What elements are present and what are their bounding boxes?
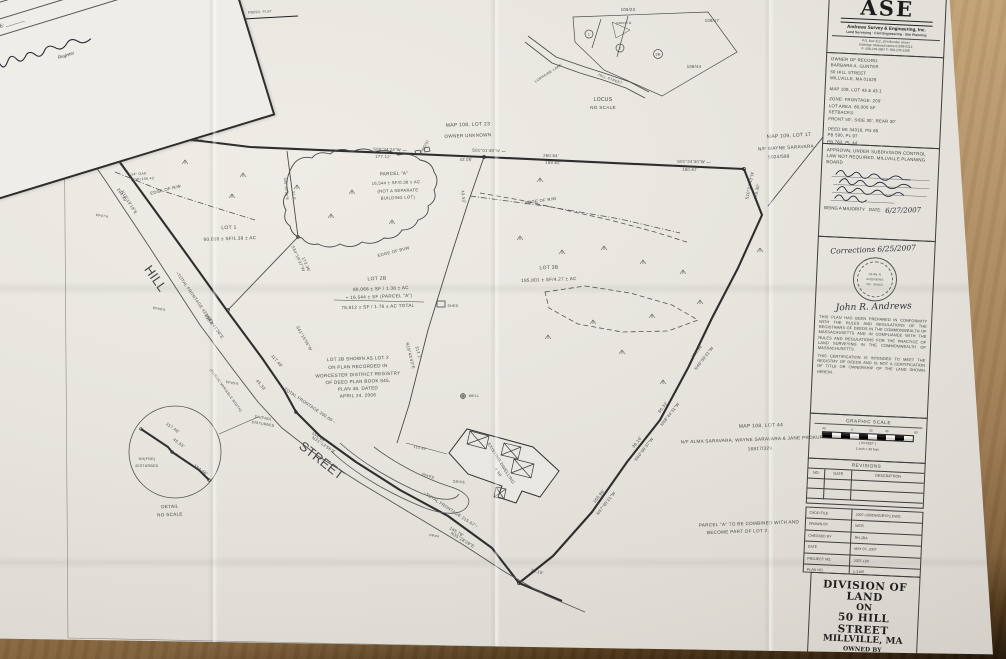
well-symbol [461,394,466,399]
dim-label: N18°19'18"E [120,189,139,215]
corrections-note-handwritten: Corrections 6/25/2007 [830,243,930,256]
parcel-a-note: BUILDING LOT) [381,194,416,200]
plan-title-block: DIVISION OF LAND ON 50 HILL STREET MILLV… [806,572,920,659]
sheet-border [64,86,856,654]
dim-label: S08°10'56"E [283,177,289,201]
monument-label: DISTURBED [252,420,275,428]
map-108-lot-44: MAP 108, LOT 44 [739,422,784,430]
detail-circle [129,406,258,498]
edge-of-rw: EDGE OF R/W [525,196,557,205]
parcel-a-note: (NOT A SEPARATE [377,187,418,193]
dim-label: 51.0' [292,191,297,200]
seal-number: No. 36062 [866,282,883,287]
locus-hill-street: HILL STREET [598,73,624,86]
scale-tick: 40 [822,426,826,430]
lot-2b-note: PLAN 48, DATED [338,385,379,391]
monument-label: DISTURBED [136,464,159,468]
lot-1-area: 60,036 ± SF/1.38 ± AC [204,235,257,242]
lot-2b-note: ON PLAN RECORDED IN [328,363,387,370]
board-signatures [824,168,934,209]
edge-of-bvw: EDGE OF BVW [377,245,410,258]
survey-plan-paper: PB590, PL97 109/23 109/17 108/44 parcel … [0,0,1006,659]
dim-label: 45.33' [172,437,186,449]
date-label: DATE: [869,208,882,214]
street-width-note: (PUBLIC-VARIABLE WIDTH) [209,368,243,413]
lot-2b-area: 60,068 ± SF / 1.38 ± AC [353,285,409,292]
deed-ref: 16817/329 [748,446,773,452]
abutter-name: N/F ALMA SARAVARA, WAYNE SARAVARA & JANE… [681,435,824,445]
being-a-majority: BEING A MAJORITY [824,205,865,212]
dim-label: 42.05' [459,157,472,162]
planning-board-approval-block: APPROVAL UNDER SUBDIVISION CONTROL LAW N… [818,143,940,242]
utility-pole: PP#5½ [225,380,238,386]
approval-text: APPROVAL UNDER SUBDIVISION CONTROL LAW N… [826,147,935,170]
certification-paragraph-1: THIS PLAN HAS BEEN PREPARED IN CONFORMIT… [818,314,928,355]
wetland-symbols [182,160,763,384]
scale-tick: 40 [885,429,889,433]
shed-label: SHED [448,304,459,308]
lot-2b-area-total: 76,612 ± SF / 1.76 ± AC TOTAL [341,303,415,311]
well-label: WELL [469,394,480,398]
dim-label: 177.12' [375,154,391,159]
utility-pole: PP#7½ [95,213,108,219]
dim-label: 38.16' [631,435,643,448]
locus-parcel-108-44: 108/44 [687,64,702,69]
deed-ref: 5024/599 [768,153,790,159]
surveyor-seal: JOHN R. ANDREWS No. 36062 [852,256,898,302]
paved-drive [331,443,469,513]
lot-1-label: LOT 1 [221,225,237,232]
detail-title: DETAIL [161,504,179,510]
scale-tick: 20 [869,428,873,432]
dim-label: 43.53' [460,190,467,204]
detail-no-scale: NO SCALE [157,512,183,518]
dim-label: 117.48' [165,421,180,434]
edge-of-rw: EDGE OF R/W [150,183,182,195]
certification-block: Corrections 6/25/2007 JOHN R. ANDREWS No… [810,236,936,419]
dim-label: 45.33' [255,378,267,391]
frontage-label: ~TOTAL FRONTAGE 200.00'~ [281,385,337,425]
revisions-empty-cell [807,489,825,500]
lot-2b-area: + 16,544 ± SF (PARCEL "A") [346,293,413,300]
dim-label: 317.1' [414,346,422,360]
owner-unknown: OWNER UNKNOWN [444,132,491,139]
parcel-a-combine-note: PARCEL "A" TO BE COMBINED WITH AND [699,519,800,528]
scale-tick: 0 [851,427,853,431]
revisions-block: REVISIONS NO. DATE DESCRIPTION [806,458,926,509]
locus-labels: 109/23 109/17 108/44 parcel A 1 2 3B LOR… [534,7,720,110]
dim-label: 155.30' [752,183,760,199]
locus-lorraine-lane: LORRAINE LANE [534,63,563,84]
dim-label: 73.15' [530,568,544,576]
street-name-hill: HILL [141,262,170,294]
dim-label: 117.48' [270,354,284,369]
locus-parcel-a: parcel A [616,21,631,25]
dim-label: 154.68' [193,463,209,476]
locus-parcel-109-23: 109/23 [621,7,636,12]
map-109-lot-17: MAP 109, LOT 17 [767,132,812,140]
dim-label: 260.64' [543,153,559,158]
locus-lot-2: 2 [619,47,621,51]
revisions-empty-cell [824,489,851,500]
dim-label: 110.36' [413,445,427,451]
certification-paragraph-2: THIS CERTIFICATION IS INTENDED TO MEET T… [817,353,926,379]
dim-label: S01°01'49"W — [472,148,507,154]
shed-symbol-mid [437,301,445,307]
dim-label: S41°15'55"W [295,325,313,352]
dim-label: S00°34'24"W — [373,147,408,153]
dim-label: 180.67' [682,167,698,172]
revisions-empty-cell [851,491,923,504]
graphic-scale-block: GRAPHIC SCALE 40 0 20 40 80 ( IN FEET ) … [808,413,928,464]
locus-lot-1: 1 [588,33,590,37]
dim-label: 199.62' [545,160,561,165]
drive-label: DRIVE [453,480,466,485]
parcel-boundary [95,128,762,601]
surveyor-signature: John R. Andrews [820,301,928,314]
plan-labels: MAP 108, LOT 23 OWNER UNKNOWN S89°34'32"… [75,116,823,576]
lot-2b-note: APRIL 24, 2006 [340,392,377,398]
lot-3b-label: LOT 3B [539,265,559,272]
utility-pole: PP#6½ [152,306,165,312]
dim-label: S01°24'30"W — [677,159,712,165]
lot-2b-note: LOT 2B SHOWN AS LOT 2 [327,355,389,362]
locus-parcel-109-17: 109/17 [705,18,720,23]
dim-label: 0.35' [171,450,181,459]
oak-tree-label: 24" OAK [131,171,147,176]
lot-3b-area: 185,801 ± SF/4.27 ± AC [521,276,577,283]
abutter-name: N/F WAYNE SARAVARA [758,144,815,152]
scale-tick: 80 [914,430,918,434]
seal-name: ANDREWS [866,277,884,282]
map-108-lot-23: MAP 108, LOT 23 [446,121,491,129]
parcel-a-combine-note: BECOME PART OF LOT 2. [707,528,769,535]
seal-name: JOHN R. [868,272,882,277]
locus-lot-3b: 3B [656,53,661,57]
firm-block: ASE Andrews Survey & Engineering, Inc. L… [826,0,947,58]
photo-scene: PB590, PL97 109/23 109/17 108/44 parcel … [0,0,1006,659]
parcel-a-area: 16,544 ± SF/0.38 ± AC [372,179,421,186]
lot-2b-label: LOT 2B [367,276,387,283]
drawing-info-table: CADD FILE2007-100/DWG/BYP2.DWG DRAWN BYW… [803,506,924,577]
north-arrow-ref: PB590, PL97 [248,9,272,14]
oak-tree-label: W/W=106.42' [131,176,156,182]
approval-date-handwritten: 6/27/2007 [885,207,921,216]
locus-no-scale: NO SCALE [590,105,616,110]
parcel-a-label: PARCEL "A" [380,171,409,177]
utility-pole: PP#4 [429,533,439,538]
sum-underline [334,300,424,302]
locus-title: LOCUS [594,97,613,103]
lot-2b-note: OF DEED PLAN BOOK 845, [325,378,390,385]
owner-of-record-block: OWNER OF RECORD: BARBARA A. GUNTER 50 HI… [822,52,944,149]
monument-label: DH(FND) [139,457,156,461]
